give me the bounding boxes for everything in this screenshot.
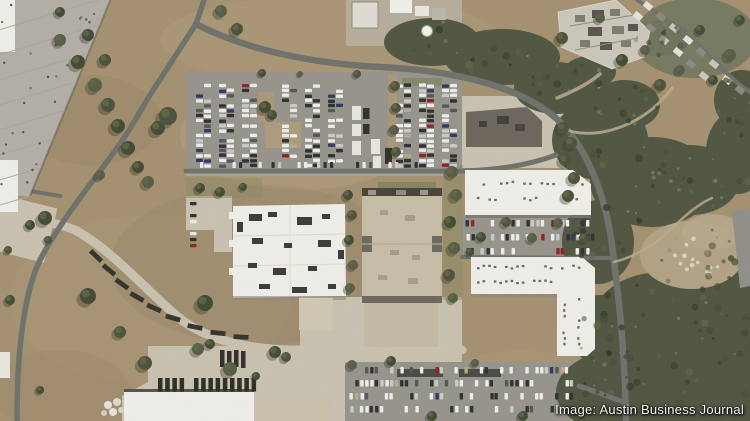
image-credit: Image: Austin Business Journal	[555, 402, 744, 418]
aerial-photo	[0, 0, 750, 421]
satellite-view[interactable]: Image: Austin Business Journal	[0, 0, 750, 421]
photo-grain-overlay	[0, 0, 750, 421]
